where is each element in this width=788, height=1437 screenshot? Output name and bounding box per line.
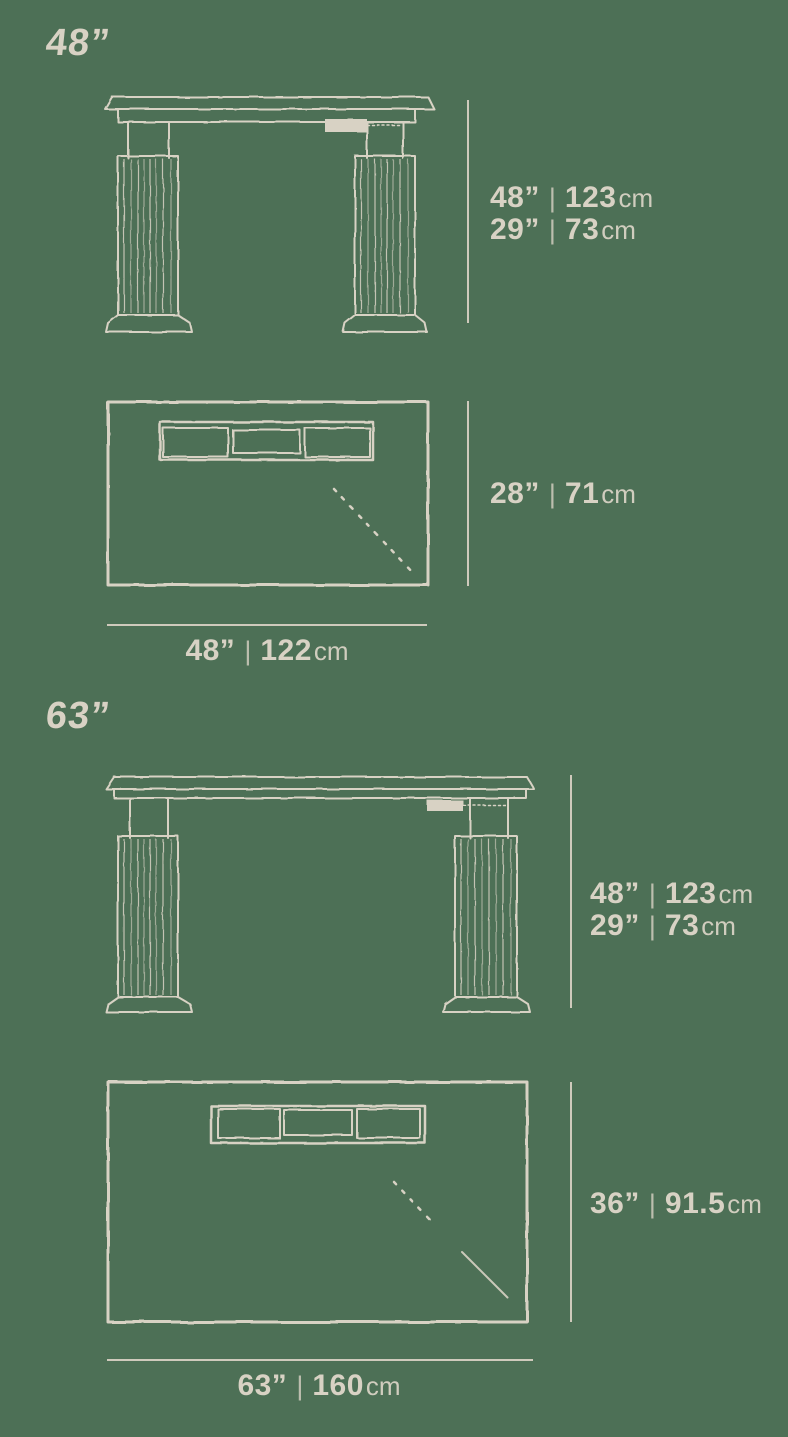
separator: | [649, 879, 656, 910]
cm-value: 73 [665, 910, 699, 941]
desk-63-width-dimension-line [107, 1359, 533, 1361]
desk-63-drawer-tray [211, 1106, 425, 1143]
desk-48-right-leg [343, 122, 427, 332]
separator: | [649, 911, 656, 942]
sketch-dashed-line [394, 1182, 432, 1222]
desk-48-width-dimension-line [107, 624, 427, 626]
separator: | [649, 1189, 656, 1220]
cm-value: 73 [565, 214, 599, 245]
cm-unit: cm [701, 911, 736, 942]
inches-value: 63” [237, 1370, 287, 1401]
desk-48-max-height-label: 48” | 123 cm [490, 182, 653, 214]
inches-value: 28” [490, 478, 540, 509]
desk-48-control-box [325, 119, 402, 132]
sketch-dashed-line [334, 489, 414, 574]
desk-63-max-height-label: 48” | 123 cm [590, 878, 753, 910]
desk-63-tabletop [106, 777, 534, 798]
desk-48-height-labels: 48” | 123 cm 29” | 73 cm [490, 182, 653, 246]
size-heading-63: 63” [44, 695, 113, 738]
desk-48-depth-dimension-line [467, 401, 469, 586]
inches-value: 29” [590, 910, 640, 941]
desk-48-min-height-label: 29” | 73 cm [490, 214, 653, 246]
inches-value: 36” [590, 1188, 640, 1219]
desk-63-tabletop-outline [108, 1082, 527, 1322]
desk-48-drawer-tray [160, 422, 373, 460]
cm-value: 123 [665, 878, 717, 909]
size-heading-48: 48” [44, 22, 113, 65]
desk-63-width-label: 63” | 160 cm [237, 1370, 400, 1402]
desk-63-depth-dimension-line [570, 1082, 572, 1322]
inches-value: 48” [185, 635, 235, 666]
desk-63-control-box [427, 800, 508, 811]
desk-63-height-dimension-line [570, 775, 572, 1008]
desk-63-left-leg [106, 798, 192, 1012]
desk-48-top-view-drawing [105, 399, 431, 589]
cm-unit: cm [727, 1189, 762, 1220]
inches-value: 48” [590, 878, 640, 909]
desk-63-depth-label: 36” | 91.5 cm [590, 1188, 762, 1220]
cm-value: 91.5 [665, 1188, 725, 1219]
separator: | [549, 183, 556, 214]
desk-63-top-view-drawing [105, 1079, 531, 1327]
separator: | [549, 215, 556, 246]
cm-value: 71 [565, 478, 599, 509]
separator: | [549, 479, 556, 510]
desk-48-tabletop [105, 97, 434, 122]
cm-unit: cm [314, 636, 349, 667]
separator: | [244, 636, 251, 667]
desk-48-front-view-drawing [103, 92, 437, 336]
cm-value: 123 [565, 182, 617, 213]
desk-63-depth-labels: 36” | 91.5 cm [590, 1188, 762, 1220]
desk-63-min-height-label: 29” | 73 cm [590, 910, 753, 942]
desk-48-depth-label: 28” | 71 cm [490, 478, 636, 510]
separator: | [296, 1371, 303, 1402]
desk-63-width-labels: 63” | 160 cm [105, 1370, 533, 1402]
cm-unit: cm [601, 215, 636, 246]
desk-63-right-leg [443, 798, 530, 1012]
desk-48-left-leg [106, 122, 192, 332]
desk-48-width-labels: 48” | 122 cm [105, 635, 429, 667]
cm-unit: cm [366, 1371, 401, 1402]
cm-unit: cm [601, 479, 636, 510]
sketch-stray-line [462, 1252, 508, 1298]
desk-63-height-labels: 48” | 123 cm 29” | 73 cm [590, 878, 753, 942]
cm-unit: cm [618, 183, 653, 214]
dimensions-diagram: 48” [0, 0, 788, 1437]
cm-value: 122 [260, 635, 312, 666]
desk-48-depth-labels: 28” | 71 cm [490, 478, 636, 510]
desk-48-height-dimension-line [467, 100, 469, 323]
cm-value: 160 [312, 1370, 364, 1401]
desk-63-front-view-drawing [103, 768, 537, 1016]
desk-48-width-label: 48” | 122 cm [185, 635, 348, 667]
inches-value: 48” [490, 182, 540, 213]
cm-unit: cm [718, 879, 753, 910]
inches-value: 29” [490, 214, 540, 245]
